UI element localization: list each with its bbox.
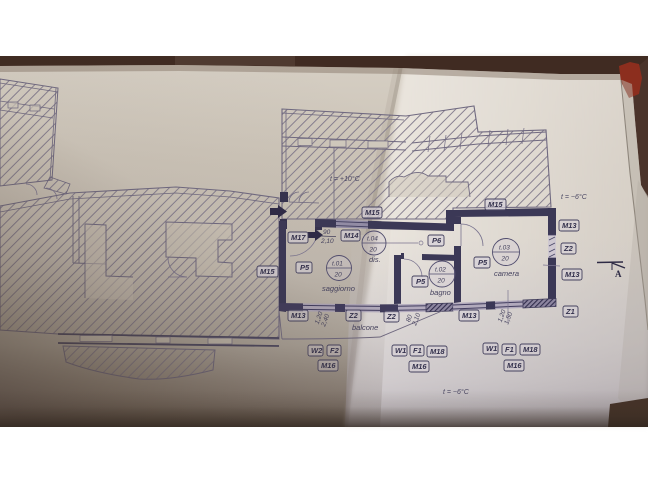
svg-text:t.02: t.02 xyxy=(435,267,446,274)
svg-text:Z1: Z1 xyxy=(565,307,575,316)
svg-text:M16: M16 xyxy=(412,362,427,371)
svg-text:bagno: bagno xyxy=(430,288,451,297)
svg-text:M18: M18 xyxy=(430,347,445,356)
svg-text:t = −6°C: t = −6°C xyxy=(561,193,588,201)
svg-text:F1: F1 xyxy=(505,345,514,354)
svg-text:P6: P6 xyxy=(432,236,442,245)
svg-text:F1: F1 xyxy=(413,346,422,355)
svg-text:20: 20 xyxy=(437,278,446,285)
svg-text:P5: P5 xyxy=(416,277,426,286)
svg-text:M13: M13 xyxy=(462,311,477,320)
svg-text:M15: M15 xyxy=(488,200,503,209)
svg-text:A: A xyxy=(615,269,622,279)
svg-text:t.03: t.03 xyxy=(499,245,510,252)
svg-text:Z2: Z2 xyxy=(386,312,397,321)
svg-text:M13: M13 xyxy=(562,221,577,230)
svg-text:20: 20 xyxy=(501,256,510,263)
svg-text:M16: M16 xyxy=(507,361,522,370)
svg-text:P5: P5 xyxy=(478,258,488,267)
svg-text:Z2: Z2 xyxy=(563,244,574,253)
svg-text:M13: M13 xyxy=(565,270,580,279)
svg-text:camera: camera xyxy=(494,269,519,278)
svg-text:M18: M18 xyxy=(523,345,538,354)
svg-text:W1: W1 xyxy=(395,346,406,355)
svg-text:W1: W1 xyxy=(486,344,497,353)
